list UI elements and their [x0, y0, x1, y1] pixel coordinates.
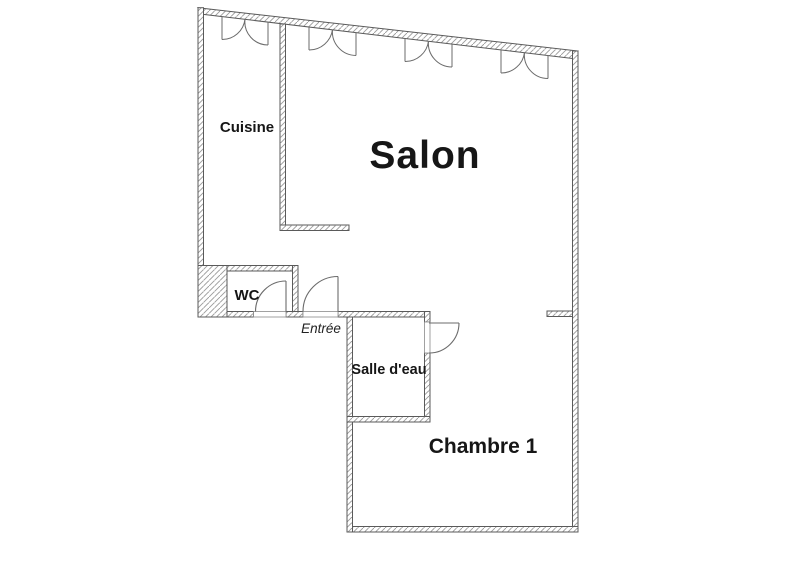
wc-door-swing [256, 281, 287, 312]
room-labels: Cuisine Salon WC Entrée Salle d'eau Cham… [220, 119, 538, 458]
wall-hall-seg-3 [338, 312, 430, 318]
sde-door-swing [429, 323, 459, 353]
wall-wc-right [293, 266, 299, 312]
wall-right [573, 51, 579, 532]
room-label-wc: WC [235, 287, 260, 304]
wall-stub-right [547, 311, 573, 317]
wall-bottom [347, 527, 578, 533]
wall-wc-block [198, 266, 227, 318]
room-label-salle-deau: Salle d'eau [351, 362, 426, 378]
room-label-salon: Salon [369, 134, 480, 177]
wall-sde-bottom [347, 417, 430, 423]
wall-kitchen-divider-horizontal [280, 225, 349, 231]
floor-plan: Cuisine Salon WC Entrée Salle d'eau Cham… [0, 0, 800, 565]
room-label-chambre-1: Chambre 1 [429, 435, 538, 458]
threshold-sde-door [425, 322, 431, 353]
threshold-entree-door [303, 312, 338, 318]
threshold-wc-door [254, 312, 287, 318]
wall-hall-seg-2 [286, 312, 303, 318]
thresholds [254, 312, 431, 354]
wall-sde-right-upper [425, 312, 431, 323]
floor-plan-canvas: Cuisine Salon WC Entrée Salle d'eau Cham… [0, 0, 800, 565]
room-label-cuisine: Cuisine [220, 119, 274, 136]
room-label-entree: Entrée [301, 321, 341, 336]
wall-top-slanted [198, 8, 578, 59]
wall-kitchen-divider-vertical [280, 24, 286, 231]
entree-door-swing [303, 277, 338, 312]
